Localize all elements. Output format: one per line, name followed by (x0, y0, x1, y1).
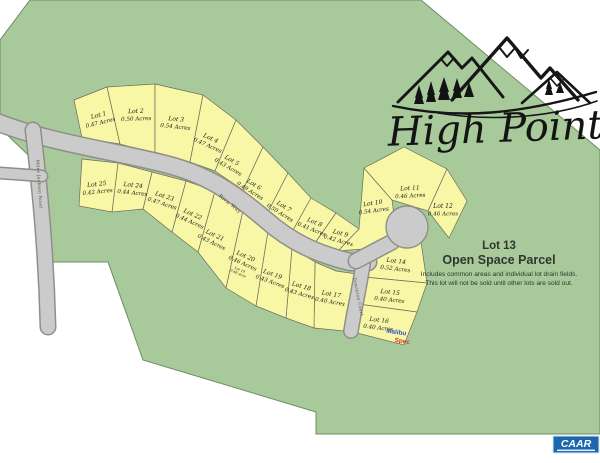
plat-map-page: Miles Jackson Road Riva Way Dominion Cou… (0, 0, 600, 463)
caar-badge-tagline (557, 450, 595, 452)
cul-de-sac (386, 206, 428, 248)
caar-badge: CAAR (553, 436, 599, 453)
open-space-subtitle: Open Space Parcel (442, 253, 555, 267)
caar-badge-text: CAAR (561, 438, 592, 450)
logo-title: High Point (386, 102, 600, 156)
open-space-body-line2: This lot will not be sold until other lo… (425, 280, 573, 287)
open-space-body-line1: Includes common areas and individual lot… (421, 271, 578, 278)
open-space-title: Lot 13 (482, 240, 516, 252)
